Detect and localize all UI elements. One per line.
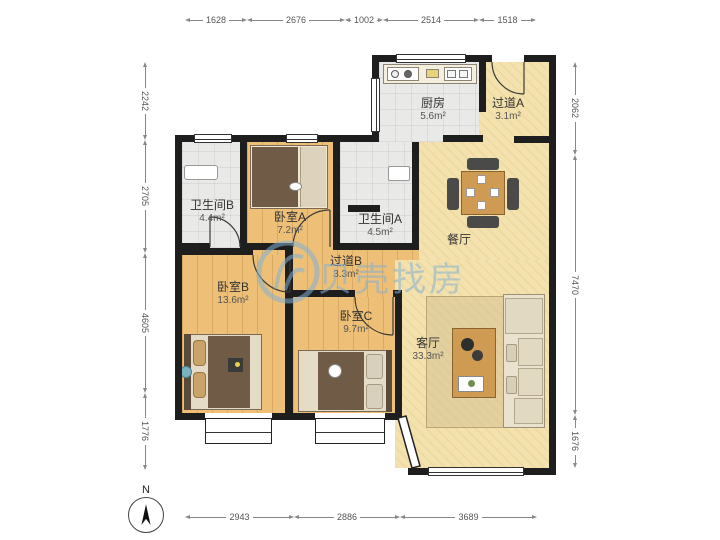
bathroom-b-window xyxy=(194,134,232,143)
wall-segment xyxy=(514,136,549,143)
wall-segment xyxy=(333,243,419,250)
cutting-board xyxy=(426,69,439,78)
kitchen-window xyxy=(396,54,466,63)
dimension-right: 7470 xyxy=(568,155,582,415)
north-label: N xyxy=(126,484,166,496)
wall-segment xyxy=(175,135,182,420)
bed-a-blanket xyxy=(300,147,326,207)
wall-segment xyxy=(272,413,315,420)
tray-plant xyxy=(468,380,475,387)
plate xyxy=(477,175,486,184)
bed-a-decor xyxy=(289,182,302,191)
tray-dot xyxy=(235,362,240,367)
stove-burner xyxy=(391,70,399,78)
bed-b-pillow xyxy=(193,372,206,398)
bed-c-pillow xyxy=(366,354,383,379)
plate xyxy=(490,188,499,197)
kitchen-side-window xyxy=(371,78,380,132)
room-label-bathroom-a: 卫生间A4.5m² xyxy=(358,213,402,239)
floor-bathroom-b xyxy=(182,142,240,248)
bathroom-b-vanity xyxy=(184,165,218,180)
dimension-bottom: 3689 xyxy=(400,510,537,524)
bedroom-a-window xyxy=(286,134,318,143)
dimension-left: 4605 xyxy=(138,253,152,393)
dining-chair xyxy=(507,178,519,210)
plate xyxy=(477,201,486,210)
sofa-cushion xyxy=(514,398,543,424)
bed-b-duvet xyxy=(208,336,250,408)
north-compass: N xyxy=(126,484,166,533)
room-label-hallway-a: 过道A3.1m² xyxy=(492,97,524,123)
room-label-bedroom-b: 卧室B13.6m² xyxy=(217,281,249,307)
table-vase xyxy=(461,338,474,351)
plate xyxy=(466,188,475,197)
stove-burner xyxy=(404,70,412,78)
dimension-right: 2062 xyxy=(568,62,582,155)
wall-segment xyxy=(549,55,556,475)
wall-segment xyxy=(175,413,205,420)
dining-chair xyxy=(447,178,459,210)
room-label-bathroom-b: 卫生间B4.4m² xyxy=(190,199,234,225)
dimension-right: 1676 xyxy=(568,415,582,468)
room-label-bedroom-c: 卧室C9.7m² xyxy=(340,310,373,336)
entry-door-opening xyxy=(492,55,524,62)
wall-segment xyxy=(333,142,340,250)
sofa-cushion xyxy=(518,368,543,396)
wall-segment xyxy=(412,142,419,212)
room-label-living: 客厅33.3m² xyxy=(412,337,443,363)
bed-c-duvet xyxy=(318,352,364,410)
dimension-bottom: 2886 xyxy=(294,510,400,524)
compass-ring xyxy=(128,497,164,533)
sink-basin xyxy=(447,70,456,78)
bedroom-b-bay-window xyxy=(205,418,272,444)
sofa-chaise xyxy=(505,298,543,334)
wall-segment xyxy=(443,135,483,142)
room-label-kitchen: 厨房5.6m² xyxy=(420,97,446,123)
wall-segment xyxy=(285,248,293,413)
dimension-left: 1776 xyxy=(138,393,152,470)
dimension-top: 1518 xyxy=(479,13,536,27)
sink-basin xyxy=(459,70,468,78)
room-label-bedroom-a: 卧室A7.2m² xyxy=(274,211,306,237)
wall-segment xyxy=(240,142,247,248)
bed-a-duvet xyxy=(252,147,298,207)
bathroom-a-fixture xyxy=(388,166,410,181)
dimension-bottom: 2943 xyxy=(185,510,294,524)
room-label-dining: 餐厅 xyxy=(447,234,471,247)
dining-chair xyxy=(467,216,499,228)
table-vase xyxy=(472,350,483,361)
bed-c-pillow xyxy=(366,384,383,409)
dimension-top: 2514 xyxy=(383,13,479,27)
wall-segment xyxy=(348,205,380,212)
dimension-top: 2676 xyxy=(247,13,345,27)
wall-segment xyxy=(385,413,402,420)
bedroom-c-bay-window xyxy=(315,418,385,444)
bed-c-headboard xyxy=(386,350,392,412)
wall-segment xyxy=(175,248,253,255)
watermark-text: 贝壳找房 xyxy=(318,252,466,301)
sofa-cushion xyxy=(518,338,543,366)
floor-plan: 厨房5.6m² 过道A3.1m² 卫生间B4.4m² 卧室A7.2m² 卫生间A… xyxy=(0,0,720,540)
wall-segment xyxy=(412,205,419,250)
dimension-left: 2705 xyxy=(138,140,152,253)
sofa-pillow xyxy=(506,344,517,362)
bed-b-pillow xyxy=(193,340,206,366)
dimension-top: 1002 xyxy=(345,13,383,27)
wall-segment xyxy=(395,290,402,413)
dining-chair xyxy=(467,158,499,170)
bed-c-decor xyxy=(328,364,342,378)
dimension-left: 2242 xyxy=(138,62,152,140)
compass-arrow-icon xyxy=(133,502,159,528)
sofa-pillow xyxy=(506,376,517,394)
living-window xyxy=(428,467,524,476)
wall-segment xyxy=(479,55,486,112)
dimension-top: 1628 xyxy=(185,13,247,27)
